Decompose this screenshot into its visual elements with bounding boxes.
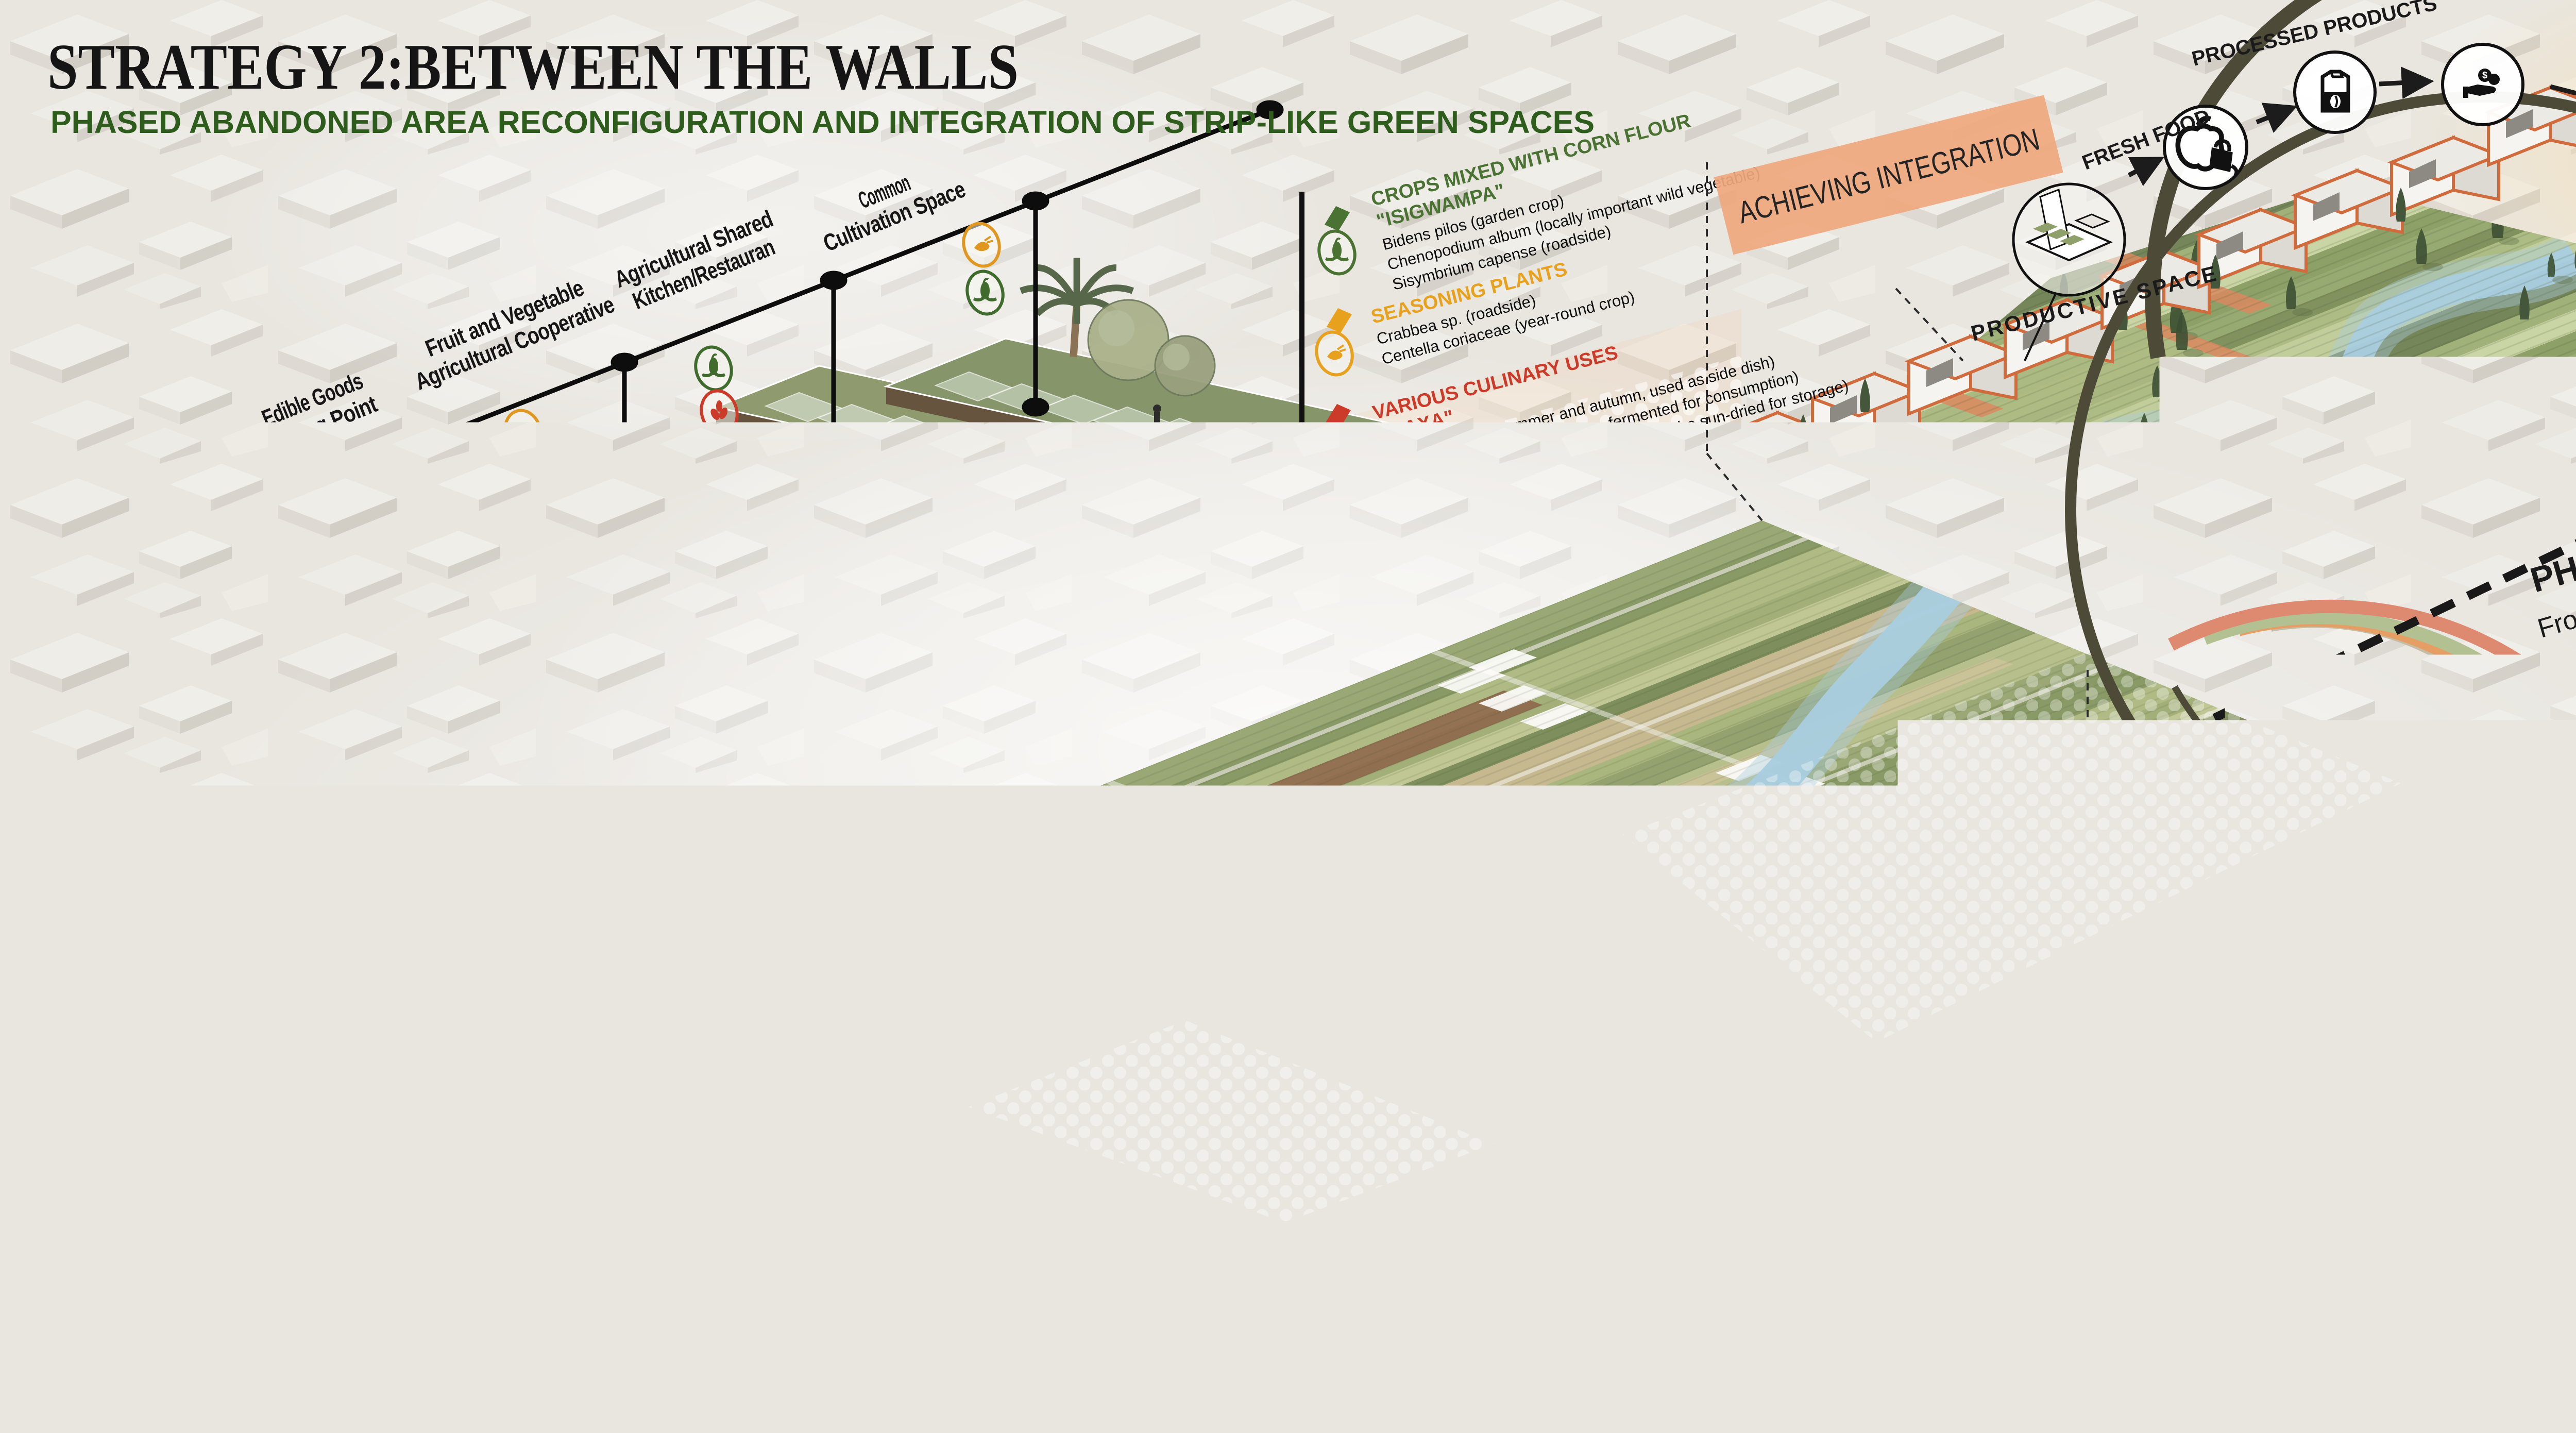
svg-text:munities in the form of green: munities in the form of green walls and … (2451, 1268, 2576, 1290)
svg-text:PHASED ABANDONED AREA RECONFIG: PHASED ABANDONED AREA RECONFIGURATION AN… (50, 105, 1595, 140)
svg-text:CONCEPT-GROWTH: the green spa: CONCEPT-GROWTH: the green spaces on each… (2451, 1304, 2576, 1329)
svg-text:as 'Imifino': as 'Imifino' (2451, 1059, 2547, 1082)
svg-text:CONCEPT-STITCHING: These wall: CONCEPT-STITCHING: These walls will conn… (2451, 1237, 2576, 1262)
svg-text:$: $ (2413, 1184, 2416, 1189)
svg-text:Bhat RB, Rubuluza T, Jäger AK.: Bhat RB, Rubuluza T, Jäger AK. The Bio-d… (1567, 1407, 2576, 1430)
svg-text:FRESH FOOD: Mainly Local Vege: FRESH FOOD: Mainly Local Vegetables and … (2451, 1029, 2576, 1054)
svg-text:PROCESSED PRODUCTS: Mainly Dr: PROCESSED PRODUCTS: Mainly Dried Vegetab… (2451, 1099, 2576, 1124)
svg-text:nities together.: nities together. (2451, 1363, 2576, 1386)
svg-text:STRATEGY 2:BETWEEN THE WALLS: STRATEGY 2:BETWEEN THE WALLS (47, 31, 1019, 103)
svg-text:Resources from White Communiti: Resources from White Communities to Blac… (2451, 1198, 2576, 1221)
svg-text:$: $ (2482, 70, 2487, 80)
svg-text:lar Products: lar Products (2451, 1129, 2561, 1152)
svg-text:expand and eventually meet, st: expand and eventually meet, stitching th… (2451, 1335, 2576, 1357)
svg-text:ECONOMIC ACTIVITIES: Enable t: ECONOMIC ACTIVITIES: Enable the Redistri… (2451, 1168, 2576, 1193)
